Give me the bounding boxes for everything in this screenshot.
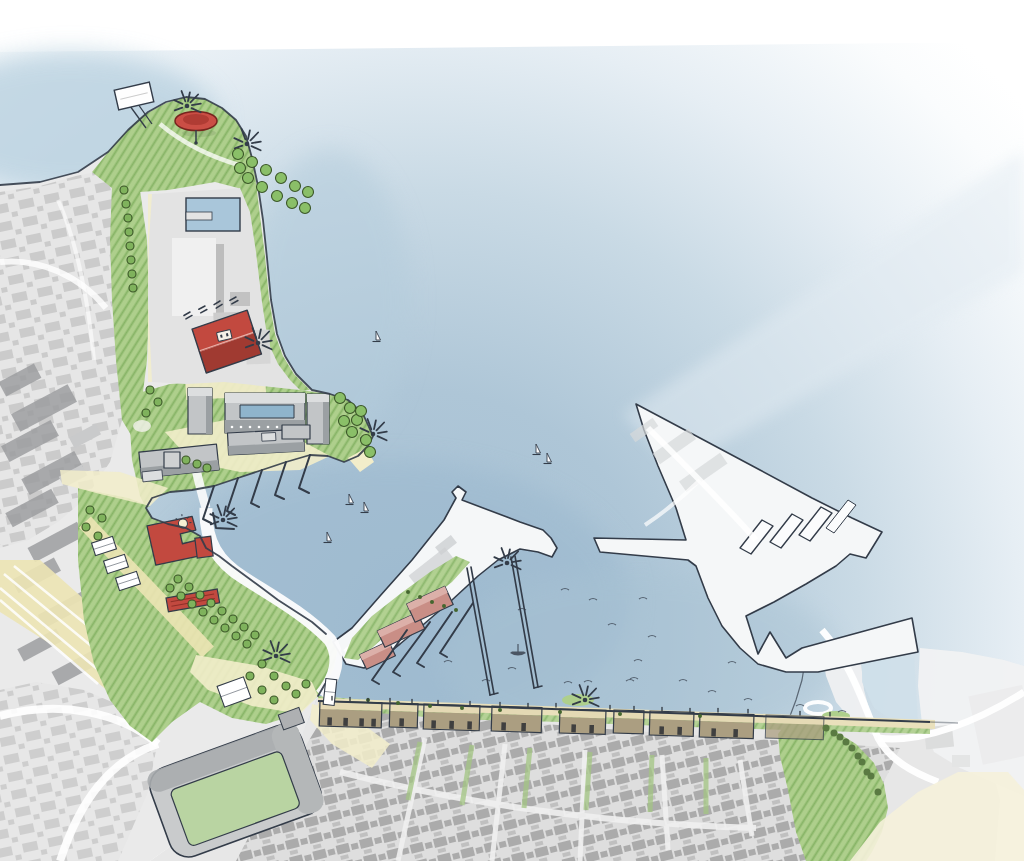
door <box>359 718 364 726</box>
pavilion-cube <box>164 452 180 468</box>
courtyard-roof <box>225 393 305 403</box>
quay-dot-tree <box>498 708 502 712</box>
street-tree <box>126 242 134 250</box>
quay-warehouse <box>699 713 754 739</box>
street-tree <box>203 464 211 472</box>
door <box>371 719 376 727</box>
window-dot <box>231 426 234 429</box>
door <box>733 729 738 737</box>
street-tree <box>196 591 204 599</box>
quay-front <box>491 714 542 733</box>
shrub <box>361 435 372 446</box>
quay-dot-tree <box>396 701 400 705</box>
street-tree <box>258 686 266 694</box>
quay-warehouse <box>649 711 694 736</box>
door <box>501 722 506 730</box>
street-tree <box>221 624 229 632</box>
shrub <box>235 163 246 174</box>
hill-tree <box>823 725 830 732</box>
port-shed-tall <box>172 238 216 316</box>
street-tree <box>243 640 251 648</box>
shrub <box>303 187 314 198</box>
tent-pavilion <box>323 678 337 705</box>
bar-d-roofbox <box>262 432 276 441</box>
quay-front <box>613 718 643 734</box>
street-tree <box>98 514 106 522</box>
hill-tree <box>837 734 844 741</box>
shrub <box>287 198 298 209</box>
street-tree <box>125 228 133 236</box>
window-dot <box>240 426 243 429</box>
street-tree <box>86 506 94 514</box>
quay-dot-tree <box>558 710 562 714</box>
shrub <box>345 403 356 414</box>
quay-warehouse <box>613 710 644 734</box>
door <box>521 723 526 731</box>
quay-warehouse <box>559 709 606 734</box>
quay-front <box>765 723 823 740</box>
tower-a-roof <box>188 388 212 396</box>
shrub <box>339 416 350 427</box>
street-tree <box>124 214 132 222</box>
street-tree <box>127 256 135 264</box>
street-tree <box>207 599 215 607</box>
starburst-dot <box>505 561 510 566</box>
door <box>343 718 348 726</box>
starburst-dot <box>274 654 279 659</box>
door <box>571 724 576 732</box>
quay-dot-tree <box>698 714 702 718</box>
quay-dot-tree <box>428 704 432 708</box>
starburst-dot <box>371 432 376 437</box>
hill-tree <box>849 745 856 752</box>
street-tree <box>120 186 128 194</box>
quay-front <box>699 721 753 739</box>
shrub <box>247 157 258 168</box>
hill-tree <box>831 730 838 737</box>
door <box>327 717 332 725</box>
inner-dock-finger-pier <box>186 212 212 220</box>
street-tree <box>166 584 174 592</box>
street-tree <box>129 284 137 292</box>
quay-warehouse <box>423 704 480 731</box>
quay-front <box>649 719 693 736</box>
street-tree <box>142 409 150 417</box>
quay-dot-tree <box>406 590 410 594</box>
tower-a <box>188 388 212 434</box>
street-tree <box>251 631 259 639</box>
door <box>677 727 682 735</box>
starburst-dot <box>256 341 261 346</box>
masterplan-illustration <box>0 0 1024 861</box>
hill-tree <box>875 789 882 796</box>
street-tree <box>94 532 102 540</box>
street-tree <box>218 607 226 615</box>
street-tree <box>146 386 154 394</box>
door <box>711 728 716 736</box>
headland-lawn-oval <box>133 420 151 432</box>
harbor-masterplan-drawing <box>0 0 1024 861</box>
quay-front <box>559 717 605 734</box>
street-tree <box>82 523 90 531</box>
street-tree <box>246 672 254 680</box>
starburst-dot <box>245 142 250 147</box>
door <box>659 726 664 734</box>
bar-d2 <box>282 425 310 439</box>
starburst-dot <box>583 698 588 703</box>
tower-c-roof <box>307 394 329 402</box>
shrub <box>347 427 358 438</box>
street-tree <box>240 623 248 631</box>
street-tree <box>229 615 237 623</box>
port-building-small <box>952 755 970 767</box>
shrub <box>272 191 283 202</box>
street-tree <box>185 583 193 591</box>
window-dot <box>267 426 270 429</box>
hill-tree <box>859 759 866 766</box>
rotunda-pole-base <box>194 141 198 145</box>
shrub <box>300 203 311 214</box>
street-tree <box>210 616 218 624</box>
civic-east-wing <box>195 536 213 558</box>
shrub <box>290 181 301 192</box>
shrub <box>356 406 367 417</box>
starburst-dot <box>185 104 190 109</box>
street-tree <box>282 682 290 690</box>
street-tree <box>199 608 207 616</box>
courtyard-atrium-glass <box>240 405 294 418</box>
door <box>449 721 454 729</box>
quay-dot-tree <box>430 600 434 604</box>
hill-tree <box>855 753 862 760</box>
window-dot <box>258 426 261 429</box>
door <box>467 721 472 729</box>
shrub <box>233 149 244 160</box>
street-tree <box>292 690 300 698</box>
street-tree <box>232 632 240 640</box>
shrub <box>257 182 268 193</box>
street-tree <box>258 660 266 668</box>
quay-dot-tree <box>454 608 458 612</box>
street-tree <box>174 575 182 583</box>
green-gap <box>650 755 652 812</box>
street-tree <box>182 456 190 464</box>
window-dot <box>276 426 279 429</box>
quay-dot-tree <box>442 604 446 608</box>
street-tree <box>302 680 310 688</box>
street-tree <box>128 270 136 278</box>
street-tree <box>193 460 201 468</box>
quay-dot-tree <box>618 712 622 716</box>
quay-warehouse <box>389 703 418 728</box>
door <box>399 718 404 726</box>
bar-e-step <box>142 470 163 482</box>
hill-tree <box>864 769 871 776</box>
street-tree <box>154 398 162 406</box>
street-tree <box>188 600 196 608</box>
shrub <box>276 173 287 184</box>
shrub <box>261 165 272 176</box>
street-tree <box>270 672 278 680</box>
door <box>589 725 594 733</box>
shrub <box>243 173 254 184</box>
hill-tree <box>843 739 850 746</box>
street-tree <box>177 592 185 600</box>
shrub <box>335 393 346 404</box>
rotunda-inner <box>183 114 209 125</box>
street-tree <box>122 200 130 208</box>
window-dot <box>249 426 252 429</box>
door <box>431 720 436 728</box>
shrub <box>365 447 376 458</box>
street-tree <box>270 696 278 704</box>
quay-dot-tree <box>460 706 464 710</box>
starburst-dot <box>221 518 226 523</box>
quay-dot-tree <box>418 595 422 599</box>
